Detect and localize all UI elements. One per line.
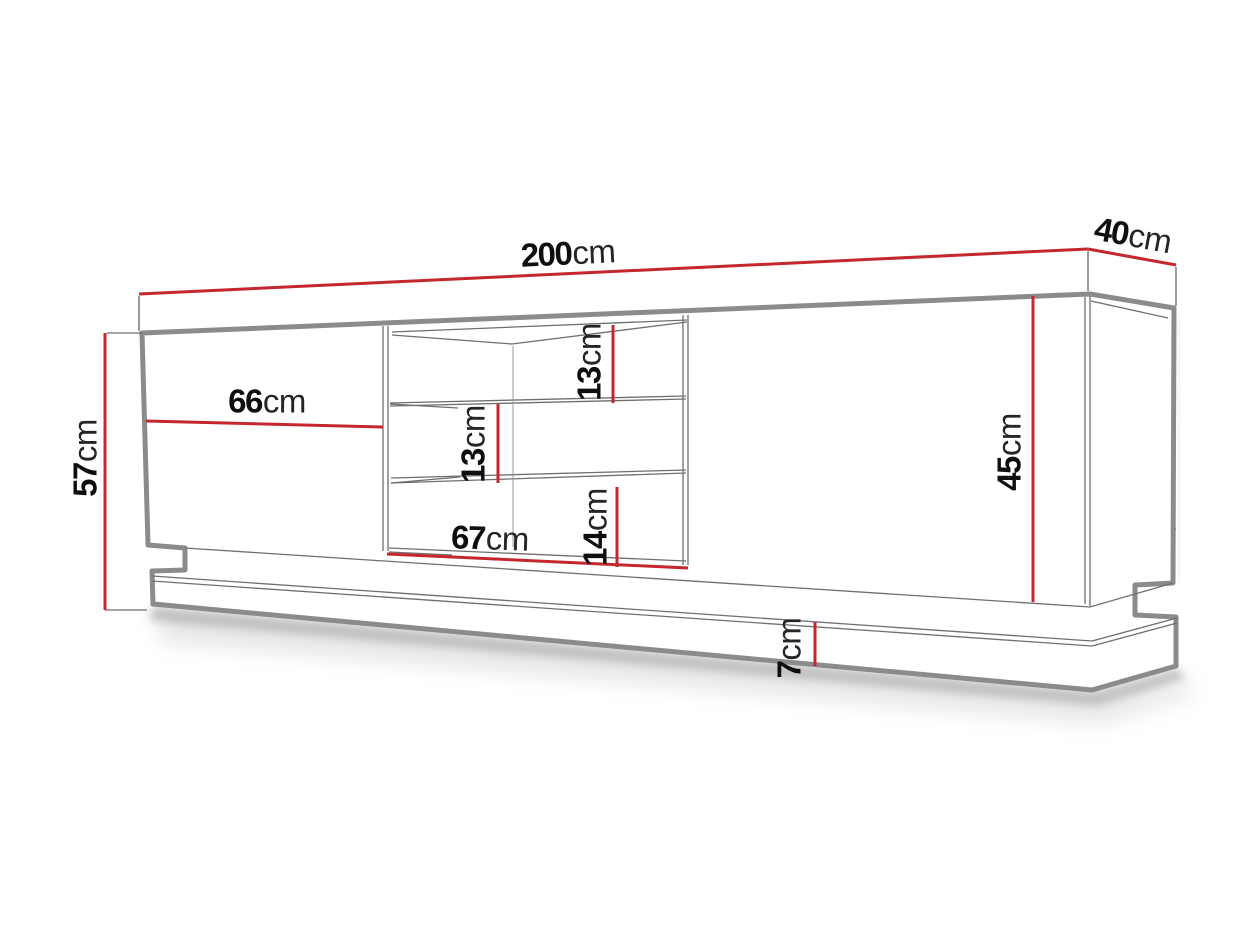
dim-value: 57 bbox=[67, 463, 104, 497]
dim-value: 66 bbox=[228, 383, 262, 420]
dim-unit: cm bbox=[577, 488, 614, 531]
furniture-line-art bbox=[0, 0, 1248, 936]
dim-unit: cm bbox=[263, 383, 306, 420]
dim-value: 13 bbox=[455, 449, 492, 483]
dim-unit: cm bbox=[991, 413, 1028, 456]
dim-label-top-shelf-height: 13cm bbox=[573, 323, 606, 401]
dim-label-left-door-width: 66cm bbox=[228, 385, 306, 418]
dim-unit: cm bbox=[485, 519, 529, 557]
hinge-dot-top bbox=[1172, 355, 1176, 359]
dim-label-niche-width: 67cm bbox=[451, 520, 530, 555]
dim-label-total-height: 57cm bbox=[69, 419, 102, 497]
dim-label-total-width: 200cm bbox=[520, 234, 616, 272]
dim-unit: cm bbox=[455, 405, 492, 448]
dim-label-bottom-shelf-height: 14cm bbox=[579, 488, 612, 566]
dim-value: 200 bbox=[520, 234, 572, 273]
dim-value: 45 bbox=[991, 457, 1028, 491]
dim-value: 14 bbox=[577, 532, 614, 566]
dim-label-middle-shelf-height: 13cm bbox=[457, 405, 490, 483]
dim-label-carcass-height: 45cm bbox=[993, 413, 1026, 491]
dim-value: 67 bbox=[451, 518, 486, 556]
dim-unit: cm bbox=[1126, 216, 1175, 260]
diagram-canvas: 200cm 40cm 57cm 66cm 67cm 13cm 13cm 14cm… bbox=[0, 0, 1248, 936]
hinge-dot-bottom bbox=[1172, 527, 1176, 531]
dim-value: 7 bbox=[771, 662, 808, 679]
dim-label-plinth-height: 7cm bbox=[773, 618, 806, 679]
shadow-right-edge bbox=[1178, 315, 1180, 583]
dim-unit: cm bbox=[571, 323, 608, 366]
dim-unit: cm bbox=[771, 618, 808, 661]
dim-value: 13 bbox=[571, 367, 608, 401]
dim-unit: cm bbox=[67, 419, 104, 462]
dim-unit: cm bbox=[571, 232, 616, 271]
dim-value: 40 bbox=[1091, 210, 1131, 253]
